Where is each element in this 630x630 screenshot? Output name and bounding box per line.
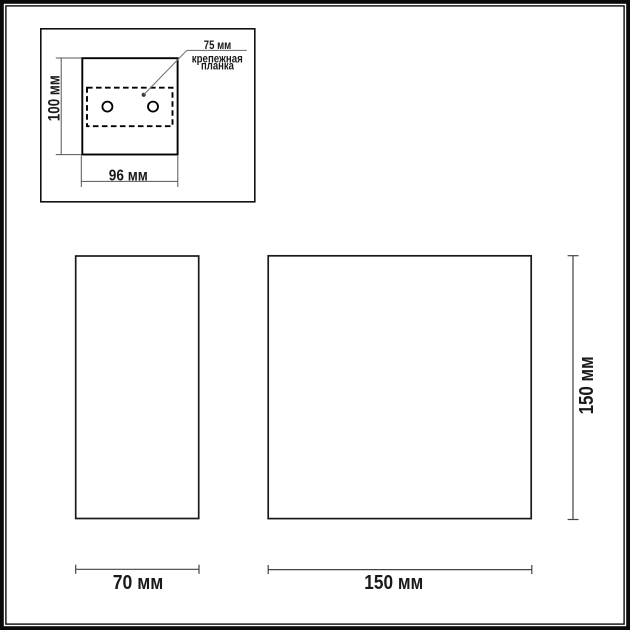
svg-text:150 мм: 150 мм [364, 571, 423, 594]
svg-text:70 мм: 70 мм [113, 571, 164, 594]
svg-text:планка: планка [201, 59, 234, 73]
svg-text:96 мм: 96 мм [109, 167, 148, 184]
svg-text:75 мм: 75 мм [204, 38, 232, 52]
svg-text:150 мм: 150 мм [575, 356, 598, 414]
svg-text:100 мм: 100 мм [46, 75, 64, 121]
